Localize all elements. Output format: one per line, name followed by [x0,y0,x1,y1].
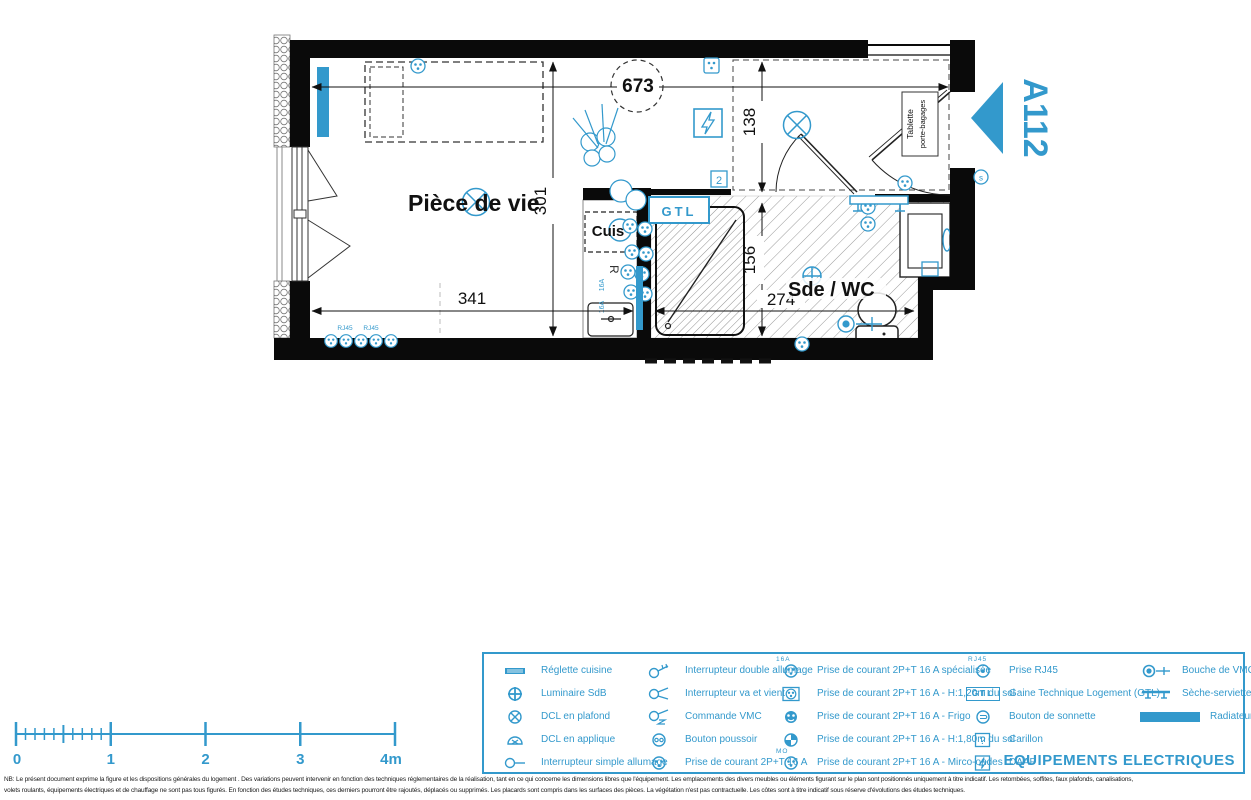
legend-item: RJ45 Prise RJ45 [966,659,1160,682]
svg-text:s: s [979,174,983,183]
svg-text:RJ45: RJ45 [337,325,353,332]
bouton-sonnette-icon [972,709,994,725]
unit-number: A112 [1016,78,1054,157]
svg-text:2: 2 [716,175,722,187]
window [292,147,350,281]
scale-tick-3: 3 [296,751,304,768]
floor-plan-page: { "colors": { "accent": "#3399CC", "wall… [0,0,1251,800]
gtl-icon: GTL [966,687,1000,701]
dcl-applique-icon [504,732,526,748]
prise-h180-icon [780,732,802,748]
bathroom-label: Sde / WC [788,279,875,301]
legend-item: Sèche-serviette [1139,682,1251,705]
reglette-cuisine-icon [504,663,526,679]
reglette-cuisine-symbol [636,266,643,330]
bathroom-door [776,134,857,194]
legend-item: Bouche de VMC [1139,659,1251,682]
tablette-porte-bagages: Tablette porte-bagages [902,92,938,156]
radiator-symbol [317,67,329,137]
dim-living-width: 341 [458,289,486,308]
prise-frigo-icon [780,709,802,725]
unit-arrow-icon [971,82,1003,154]
vanity-sink [900,203,951,277]
interrupteur-va-et-vient-icon [648,686,670,702]
scale-tick-1: 1 [107,751,115,768]
bouton-poussoir-icon [648,732,670,748]
dim-top-width: 673 [622,76,654,97]
outlet-symbol [861,217,875,231]
bouche-vmc-icon [1141,663,1171,679]
prise-micro-ondes-icon [780,755,802,771]
scale-bar: 0 1 2 3 4m [0,714,430,772]
legend-item: Bouton de sonnette [966,705,1160,728]
floor-plan-drawing: GTL Tablette porte-bagages 2 [0,0,1251,648]
gtl-box: GTL [649,197,709,223]
seche-serviette-icon [1141,686,1171,702]
svg-text:RJ45: RJ45 [363,325,379,332]
prise-h120-icon [780,686,802,702]
equipment-legend: Réglette cuisine Luminaire SdB DCL en pl… [482,652,1245,774]
dim-bath-height: 156 [740,246,759,274]
scale-tick-4: 4m [380,751,402,768]
kitchen-label: Cuis [592,223,625,240]
daaf-symbol [694,109,722,137]
gtl-label: GTL [662,204,697,219]
svg-text:16A: 16A [599,278,606,291]
unit-marker: A112 [971,78,1054,157]
living-room-label: Pièce de vie [408,190,540,216]
shower [656,207,744,335]
carillon-icon: ? [972,732,994,748]
daaf-icon [972,755,994,771]
luminaire-sdb-icon [504,686,526,702]
sonnette-symbol: s [974,170,988,184]
interrupteur-double-icon [648,663,670,679]
insulation-hatch [274,35,290,338]
legend-title: EQUIPEMENTS ELECTRIQUES [1003,752,1235,769]
carillon-symbol: 2 [711,171,727,187]
commande-vmc-icon [648,709,670,725]
legend-column-5: Bouche de VMC Sèche-serviette Radiateur [1139,659,1251,728]
legend-item: GTL Gaine Technique Logement (GTL) [966,682,1160,705]
rj45-outlets: RJ45 RJ45 [325,325,398,347]
dcl-plafond-icon [504,709,526,725]
outlet-symbol [795,337,809,351]
disclaimer-line-1: NB: Le présent document exprime la figur… [4,774,1249,785]
disclaimer-line-2: volets roulants, équipements électriques… [4,785,1249,796]
fridge-label: R [607,265,621,274]
outlet-symbol [898,176,912,190]
svg-text:Tablette: Tablette [905,109,915,139]
prise-rj45-icon [972,663,994,679]
bed-outline [365,62,543,142]
outlet-symbol [411,59,425,73]
svg-text:porte-bagages: porte-bagages [918,100,927,149]
scale-tick-2: 2 [201,751,209,768]
interrupteur-simple-icon [504,755,526,771]
prise-16a-icon [648,755,670,771]
legend-item: ? Carillon [966,728,1160,751]
legend-item: Radiateur [1139,705,1251,728]
radiateur-icon [1139,709,1201,725]
dim-entry-height: 138 [740,108,759,136]
prise-specialisee-icon [780,663,802,679]
disclaimer-text: NB: Le présent document exprime la figur… [4,774,1249,796]
scale-tick-0: 0 [13,751,21,768]
dcl-plafond-symbol [784,112,811,139]
wall-outlet-symbol [704,58,719,73]
svg-text:?: ? [979,735,985,747]
